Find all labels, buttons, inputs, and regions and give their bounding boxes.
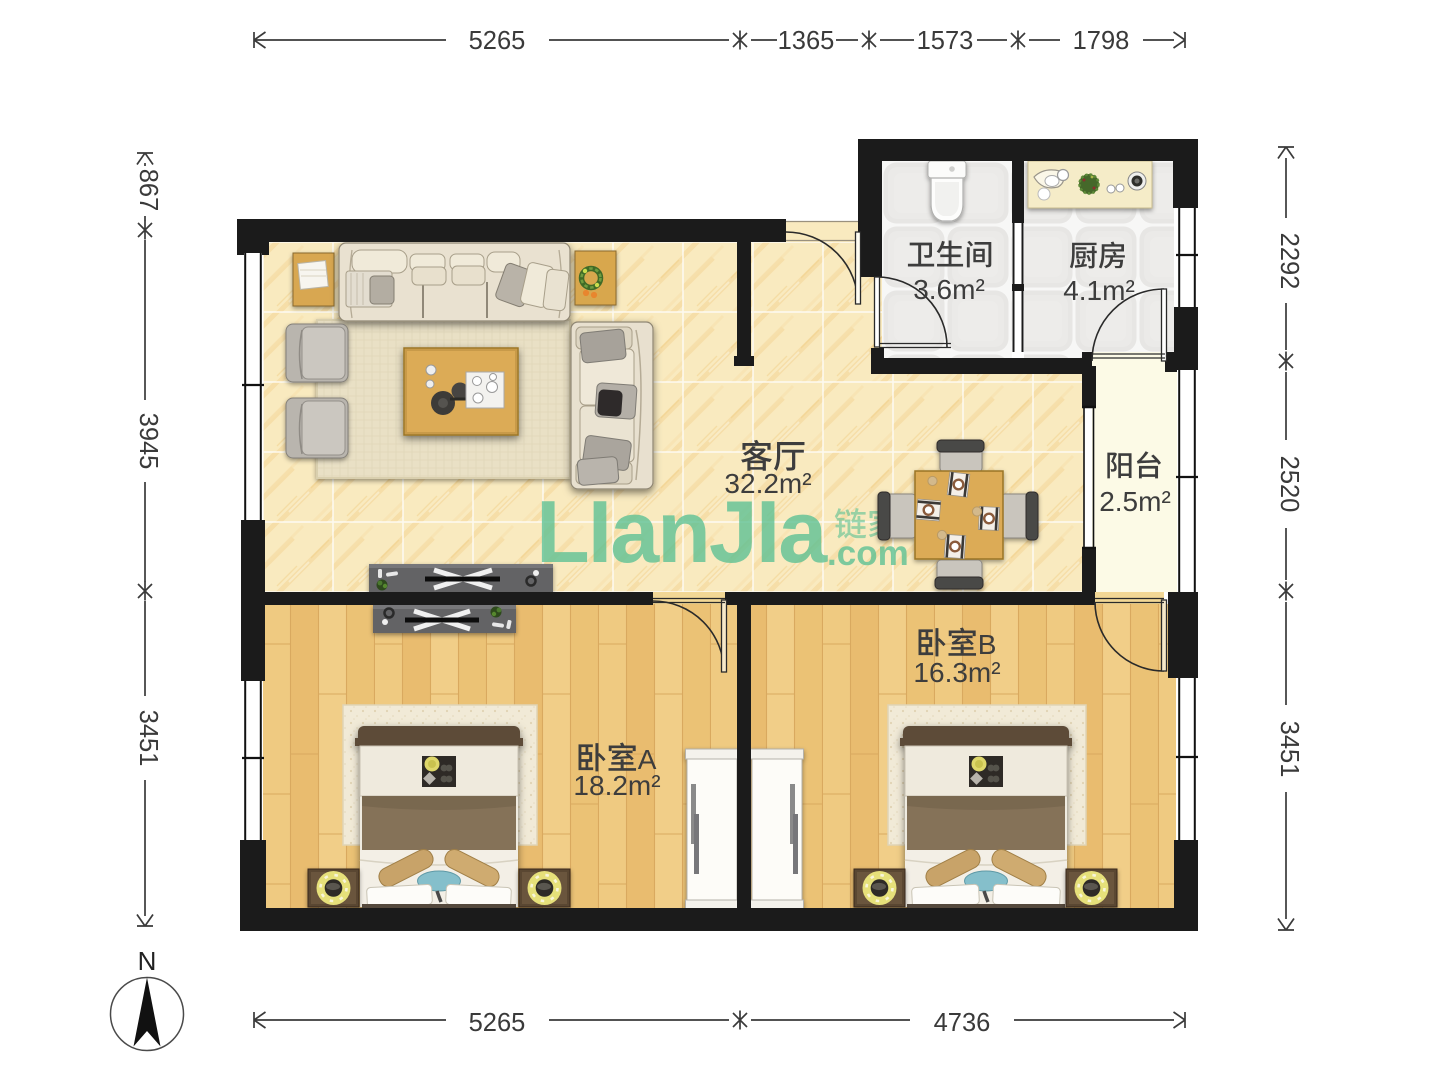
- svg-text:N: N: [138, 946, 157, 976]
- svg-text:3.6m²: 3.6m²: [913, 274, 985, 305]
- svg-text:867: 867: [134, 169, 162, 212]
- svg-text:16.3m²: 16.3m²: [913, 657, 1000, 688]
- svg-text:2.5m²: 2.5m²: [1099, 486, 1171, 517]
- svg-text:2292: 2292: [1275, 233, 1303, 290]
- svg-text:18.2m²: 18.2m²: [573, 770, 660, 801]
- svg-text:3451: 3451: [1275, 721, 1303, 778]
- svg-text:3451: 3451: [134, 710, 162, 767]
- svg-text:4736: 4736: [934, 1009, 991, 1037]
- svg-text:5265: 5265: [469, 27, 526, 55]
- svg-text:1798: 1798: [1073, 27, 1130, 55]
- svg-text:.com: .com: [827, 534, 909, 573]
- svg-text:5265: 5265: [469, 1009, 526, 1037]
- svg-text:B: B: [978, 629, 997, 660]
- svg-text:2520: 2520: [1275, 456, 1303, 513]
- svg-text:1573: 1573: [917, 27, 974, 55]
- svg-text:32.2m²: 32.2m²: [724, 468, 811, 499]
- svg-text:1365: 1365: [778, 27, 835, 55]
- svg-text:3945: 3945: [134, 413, 162, 470]
- svg-text:4.1m²: 4.1m²: [1063, 275, 1135, 306]
